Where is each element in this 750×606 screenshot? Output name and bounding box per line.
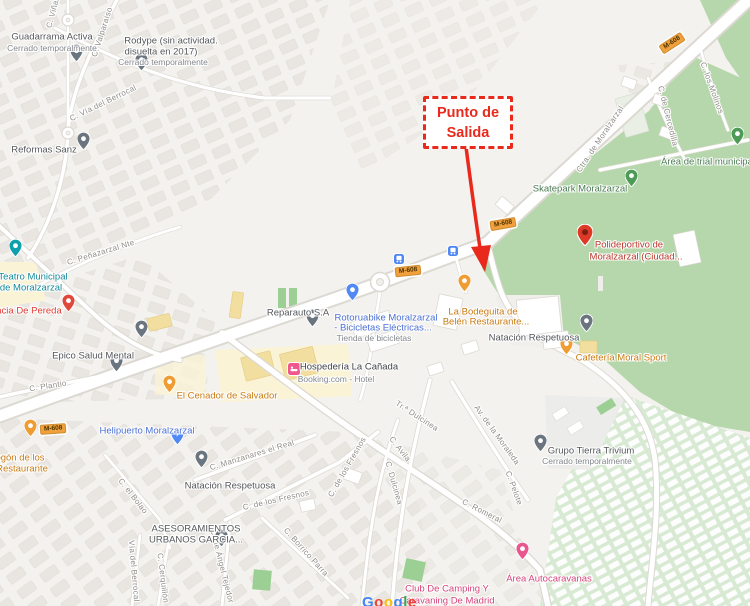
poi-label-asesoramientos-2[interactable]: URBANOS GARCIA...	[149, 535, 243, 546]
google-letter: g	[394, 594, 404, 606]
poi-label-bodeguita-2[interactable]: Belén Restaurante...	[443, 317, 530, 328]
poi-label-polideportivo-1[interactable]: Polideportivo de	[595, 240, 663, 251]
map-viewport[interactable]: C. Viñas C. Valparaíso C. Vía del Berroc…	[0, 0, 750, 606]
poi-pin-trial[interactable]	[731, 127, 744, 145]
poi-sublabel-trivium: Cerrado temporalmente	[542, 456, 632, 466]
road-badge-m608-left: M-608	[40, 423, 67, 435]
poi-label-asesoramientos-1[interactable]: ASESORAMIENTOS	[151, 524, 240, 535]
poi-sublabel-rotoruabike: Tienda de bicicletas	[337, 333, 412, 343]
poi-label-hospederia[interactable]: Hospedería La Cañada	[300, 362, 398, 373]
google-letter: o	[384, 594, 394, 606]
google-letter: e	[408, 594, 417, 606]
salida-line-2: Salida	[447, 123, 490, 143]
poi-pin-reformas-sanz[interactable]	[77, 132, 90, 150]
poi-label-helipuerto[interactable]: Helipuerto Moralzarzal	[99, 426, 194, 437]
poi-pin-cenador[interactable]	[163, 375, 176, 393]
poi-pin-teatro[interactable]	[9, 239, 22, 257]
poi-label-natacion-1[interactable]: Natación Respetuosa	[489, 333, 580, 344]
poi-label-rodype-2[interactable]: disuelta en 2017)	[125, 47, 198, 58]
poi-pin-epico-1[interactable]	[135, 320, 148, 338]
salida-annotation: Punto de Salida	[423, 96, 513, 149]
map-canvas[interactable]	[0, 0, 750, 606]
poi-label-pereda[interactable]: acia De Pereda	[0, 306, 62, 317]
poi-pin-meson[interactable]	[24, 419, 37, 437]
poi-label-meson-2[interactable]: Restaurante	[0, 464, 48, 475]
poi-label-trivium[interactable]: Grupo Tierra Trivium	[548, 446, 635, 457]
poi-label-skatepark[interactable]: Skatepark Moralzarzal	[533, 184, 628, 195]
poi-label-epico[interactable]: Epico Salud Mental	[52, 351, 134, 362]
poi-sublabel-guadarrama-activa: Cerrado temporalmente	[7, 43, 97, 53]
poi-pin-natacion-2[interactable]	[195, 450, 208, 468]
poi-label-rodype-1[interactable]: Rodype (sin actividad.	[124, 36, 217, 47]
poi-pin-polideportivo[interactable]	[577, 224, 593, 246]
google-letter: G	[362, 594, 374, 606]
poi-label-cenador[interactable]: El Cenador de Salvador	[177, 391, 278, 402]
poi-label-reparauto[interactable]: Reparauto S.A	[267, 308, 329, 319]
bus-stop-icon-1[interactable]	[394, 254, 404, 264]
poi-label-reformas-sanz[interactable]: Reformas Sanz	[11, 145, 76, 156]
poi-pin-rotoruabike[interactable]	[346, 283, 359, 301]
poi-sublabel-hospederia: Booking.com - Hotel	[298, 374, 375, 384]
poi-label-meson-1[interactable]: ogón de los	[0, 453, 45, 464]
poi-label-natacion-2[interactable]: Natación Respetuosa	[185, 481, 276, 492]
poi-sublabel-rodype: Cerrado temporalmente	[118, 57, 208, 67]
poi-label-trial[interactable]: Área de trial municipal	[661, 157, 750, 168]
poi-pin-natacion-1[interactable]	[580, 314, 593, 332]
google-letter: o	[374, 594, 384, 606]
poi-pin-trivium[interactable]	[534, 434, 547, 452]
poi-label-camping-1[interactable]: Club De Camping Y	[405, 584, 489, 595]
poi-label-teatro-2[interactable]: de Moralzarzal	[0, 283, 62, 294]
poi-label-polideportivo-2[interactable]: Moralzarzal (Ciudad...	[590, 252, 683, 263]
poi-label-rotoruabike-2[interactable]: - Bicicletas Eléctricas...	[334, 323, 432, 334]
bus-stop-icon-2[interactable]	[448, 246, 458, 256]
google-logo[interactable]: Google	[362, 594, 417, 606]
poi-pin-autocaravanas[interactable]	[516, 542, 529, 560]
poi-pin-bodeguita[interactable]	[458, 274, 471, 292]
poi-label-cafeteria[interactable]: Cafetería Moral Sport	[576, 353, 667, 364]
salida-line-1: Punto de	[437, 103, 499, 123]
poi-label-guadarrama-activa[interactable]: Guadarrama Activa	[11, 32, 92, 43]
poi-pin-pereda[interactable]	[62, 294, 75, 312]
poi-label-autocaravanas[interactable]: Área Autocaravanas	[506, 574, 592, 585]
poi-label-teatro-1[interactable]: Teatro Municipal	[0, 272, 68, 283]
